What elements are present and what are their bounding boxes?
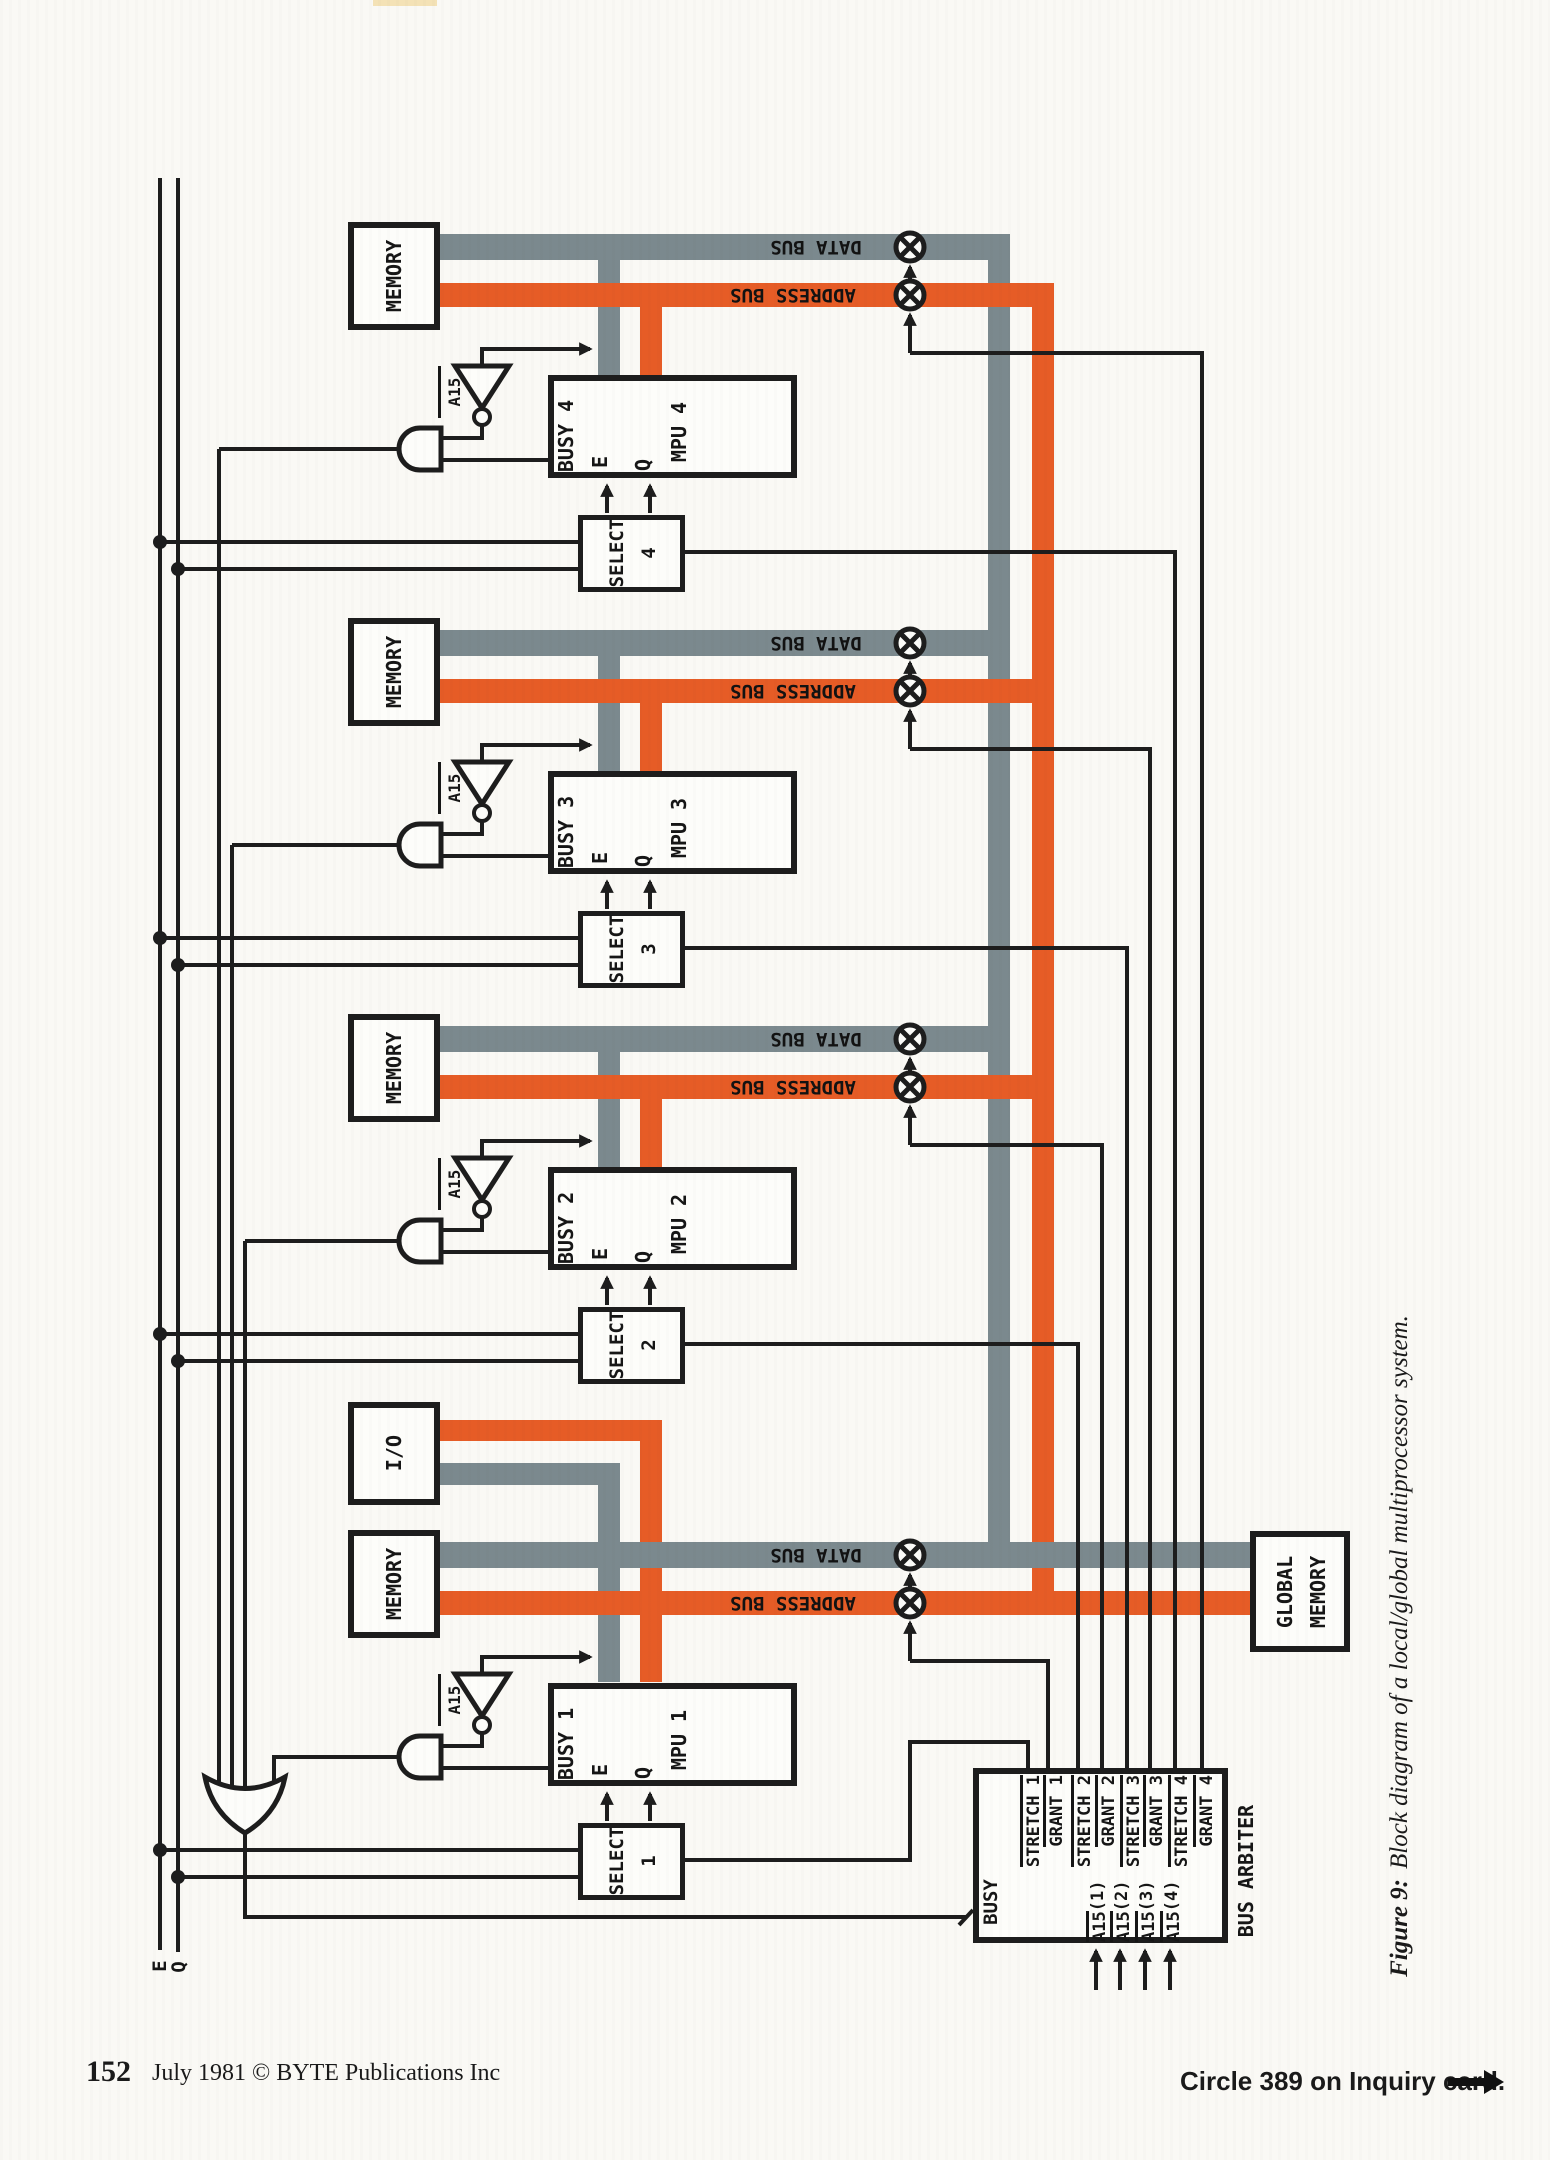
arbiter-a15-arrows — [1096, 1951, 1170, 1990]
arbiter-a15-label-1: A15 (1) — [1086, 1792, 1110, 1942]
figure-caption-body: Block diagram of a local/global multipro… — [1386, 1315, 1414, 1869]
local-address-branch-4 — [640, 307, 662, 378]
address-bus-4 — [440, 283, 1054, 307]
bus-layer — [440, 234, 1252, 1682]
diagram-wiring — [0, 0, 1550, 2160]
address-bus-2 — [440, 1075, 1054, 1099]
q-rail-terminal-label: Q — [167, 1957, 191, 1977]
local-address-branch-2 — [640, 1099, 662, 1170]
arbiter-a15-label-4: A15 (4) — [1160, 1792, 1184, 1942]
inquiry-arrow-head — [1484, 2070, 1504, 2094]
arbiter-pin-grant1: GRANT 1 — [1043, 1775, 1067, 1925]
arbiter-a15-label-2: A15 (2) — [1110, 1792, 1134, 1942]
arbiter-pin-grant4: GRANT 4 — [1193, 1775, 1217, 1925]
local-address-branch-3 — [640, 703, 662, 774]
local-data-branch-2 — [598, 1052, 620, 1170]
arbiter-a15-label-3: A15 (3) — [1135, 1792, 1159, 1942]
figure-caption: Figure 9: Block diagram of a local/globa… — [1385, 1284, 1415, 2008]
bus-arbiter-title: BUS ARBITER — [1234, 1786, 1258, 1956]
local-data-branch-3 — [598, 656, 620, 774]
page-number: 152 — [86, 2055, 131, 2089]
io-data-loop — [440, 1463, 620, 1485]
and-output-1 — [274, 1757, 401, 1781]
inquiry-arrow-shaft — [1448, 2078, 1486, 2086]
magazine-page: MEMORY DATA BUS ADDRESS BUS A15 BUSY 4 M… — [0, 0, 1550, 2160]
arbiter-pin-stretch1: STRETCH 1 — [1020, 1775, 1044, 1925]
grant3-line — [910, 749, 1150, 1771]
local-data-branch-1 — [598, 1463, 620, 1682]
global-memory-box — [1250, 1531, 1350, 1652]
publication-credit: July 1981 © BYTE Publications Inc — [152, 2060, 500, 2087]
data-bus-1 — [440, 1542, 1252, 1568]
global-memory-label-2: MEMORY — [1306, 1537, 1330, 1647]
local-data-branch-4 — [598, 260, 620, 378]
figure-caption-prefix: Figure 9: — [1386, 1879, 1414, 1977]
arbiter-busy-label: BUSY — [979, 1862, 1003, 1942]
global-memory-label-1: GLOBAL — [1273, 1537, 1297, 1647]
address-bus-1 — [440, 1591, 1252, 1615]
io-address-loop — [440, 1420, 662, 1441]
global-data-bus-vertical — [988, 234, 1010, 1568]
address-bus-3 — [440, 679, 1054, 703]
